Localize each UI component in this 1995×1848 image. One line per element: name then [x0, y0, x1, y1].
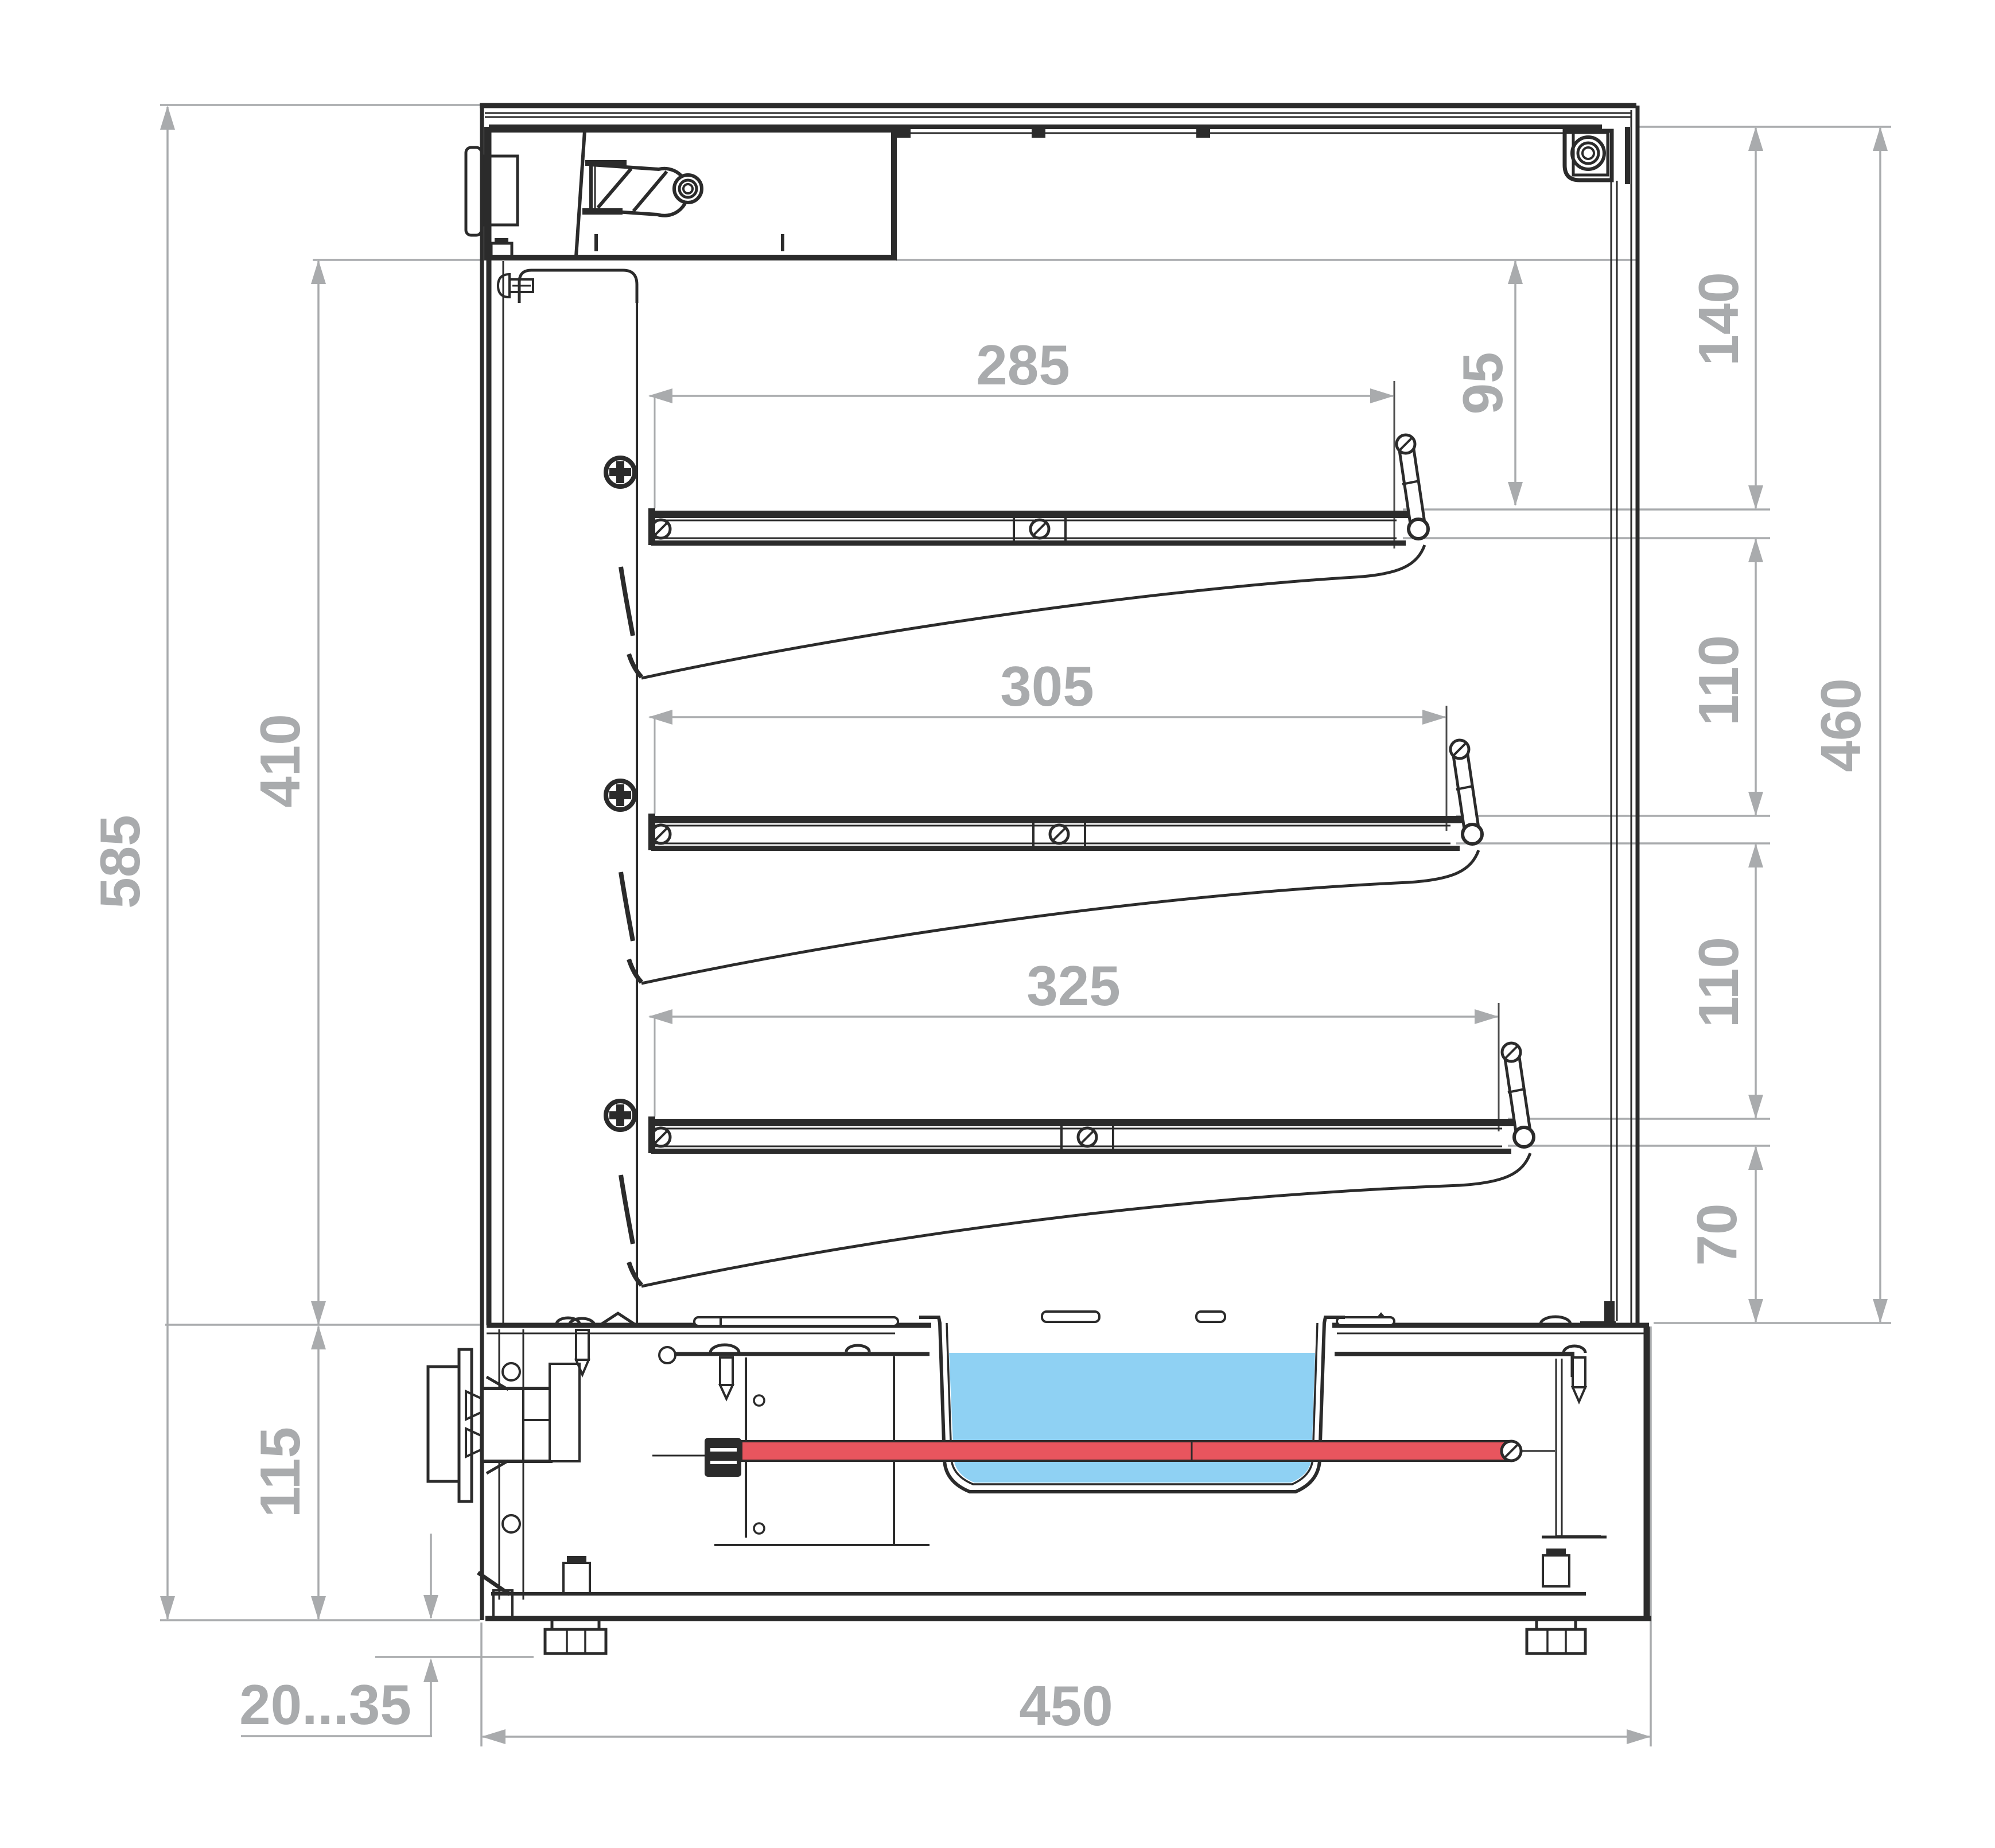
- svg-text:70: 70: [1685, 1203, 1748, 1266]
- svg-text:115: 115: [248, 1427, 312, 1518]
- svg-text:95: 95: [1451, 352, 1514, 414]
- svg-text:285: 285: [976, 333, 1070, 396]
- svg-text:410: 410: [248, 714, 312, 808]
- svg-text:450: 450: [1019, 1674, 1113, 1737]
- svg-text:140: 140: [1687, 272, 1750, 366]
- svg-text:110: 110: [1687, 635, 1750, 726]
- svg-text:460: 460: [1809, 678, 1872, 772]
- svg-text:20...35: 20...35: [239, 1673, 411, 1736]
- svg-text:585: 585: [88, 815, 151, 909]
- svg-text:305: 305: [1000, 655, 1094, 718]
- svg-text:110: 110: [1687, 937, 1750, 1028]
- svg-text:325: 325: [1026, 954, 1121, 1017]
